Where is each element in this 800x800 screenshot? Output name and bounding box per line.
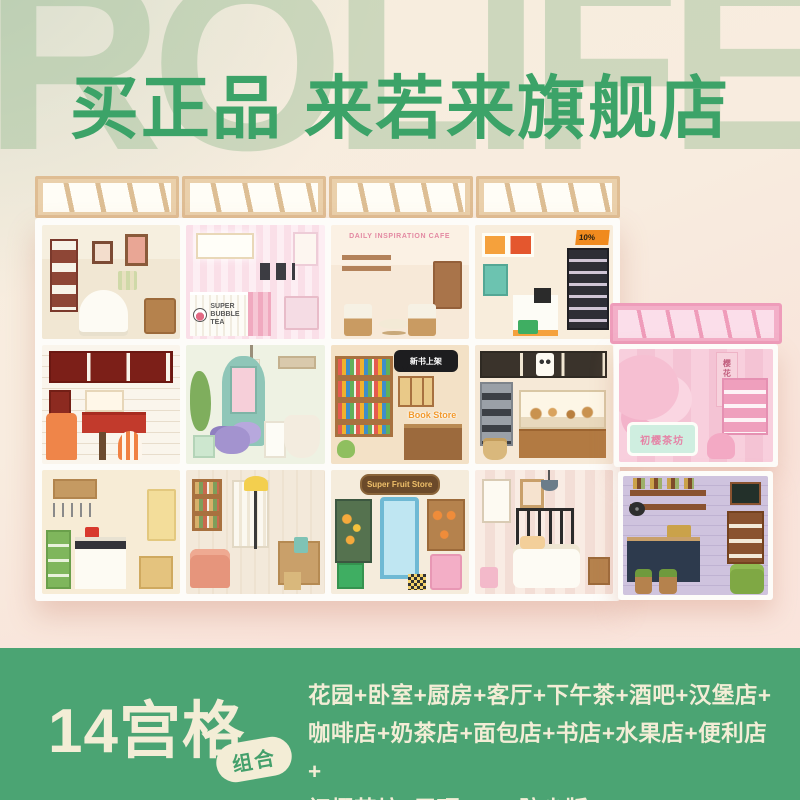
hydrangea-flowers <box>214 426 250 455</box>
teahouse-sign: 初樱茶坊 <box>627 422 698 456</box>
pink-table <box>707 433 735 459</box>
pink-machine <box>284 296 319 330</box>
vinyl-record <box>629 502 645 516</box>
cash-register <box>534 288 551 303</box>
menu-lightbox <box>196 233 254 259</box>
display-cabinet <box>727 511 763 565</box>
green-plush <box>337 440 355 458</box>
cherry-blossom-tree <box>619 355 679 421</box>
room-cafe: DAILY INSPIRATION CAFE <box>331 225 469 339</box>
store-sign: Super Fruit Store <box>360 474 440 495</box>
tea-table <box>79 290 127 336</box>
skylight-panes <box>484 183 612 212</box>
yellow-fridge <box>147 489 176 541</box>
roof-module <box>35 176 179 218</box>
window <box>482 479 511 524</box>
fruit-shelf <box>427 499 464 551</box>
bed-duvet <box>513 544 579 587</box>
sale-sign: 10% <box>575 230 610 245</box>
counter-base <box>519 429 606 458</box>
bread-oven <box>480 382 513 446</box>
wood-counter <box>404 424 462 461</box>
footer-band: 14宫格 组合 花园+卧室+厨房+客厅+下午茶+酒吧+汉堡店+ 咖啡店+奶茶店+… <box>0 648 800 800</box>
wall-shelves <box>630 490 705 496</box>
blue-door <box>380 497 419 579</box>
room-kitchen <box>42 470 180 594</box>
menu-boards <box>49 351 173 383</box>
included-items-list: 花园+卧室+厨房+客厅+下午茶+酒吧+汉堡店+ 咖啡店+奶茶店+面包店+书店+水… <box>308 677 780 800</box>
roof-module <box>476 176 620 218</box>
wall-shelf <box>342 255 392 261</box>
drink-poster <box>293 232 318 266</box>
cafe-chair <box>408 304 436 336</box>
skylight-panes <box>618 310 774 338</box>
room-convenience: 10% <box>475 225 613 339</box>
room-teahouse: 樱花吃茶 初樱茶坊 <box>619 349 773 462</box>
menu-lightbox <box>482 233 535 257</box>
counter-side-panel <box>248 292 270 335</box>
teahouse-box: 樱花吃茶 初樱茶坊 <box>614 344 778 467</box>
bookshelves <box>335 356 393 437</box>
lamp-shade <box>541 480 558 491</box>
fruit-stand <box>335 499 372 563</box>
room-fruit-store: Super Fruit Store <box>331 470 469 594</box>
shopping-basket <box>518 320 539 335</box>
items-line: 咖啡店+奶茶店+面包店+书店+水果店+便利店+ <box>308 715 780 791</box>
counter-sign: SUPER BUBBLE TEA <box>210 303 245 327</box>
nightstand <box>588 557 610 586</box>
teahouse-roof <box>610 303 782 344</box>
room-burger <box>42 345 180 464</box>
burger-display-case <box>85 390 124 411</box>
wall-plaque <box>278 356 317 369</box>
dessert-cart <box>144 298 176 334</box>
items-line: 初樱茶坊+屋顶B*4 +防尘版B*15 <box>308 791 780 800</box>
maroon-shelf <box>50 239 78 312</box>
sale-text: 10% <box>578 232 595 241</box>
roof-module <box>182 176 326 218</box>
items-line: 花园+卧室+厨房+客厅+下午茶+酒吧+汉堡店+ <box>308 677 780 715</box>
booth-seat <box>46 413 76 461</box>
headline: 买正品 来若来旗舰店 <box>0 52 800 152</box>
floor-lamp-shade <box>244 476 268 491</box>
room-living-room <box>186 470 324 594</box>
room-bedroom <box>475 470 613 594</box>
display-cabinet: SUPER BUBBLE TEA DAILY INSPIRATION CAFE … <box>35 218 620 601</box>
table-stand <box>99 432 106 461</box>
arch-window <box>230 366 256 414</box>
room-garden <box>186 345 324 464</box>
bar-box <box>618 471 773 600</box>
utensil-hooks <box>53 503 97 517</box>
white-chair <box>264 421 286 458</box>
room-bubble-tea: SUPER BUBBLE TEA <box>186 225 324 339</box>
cloth-table <box>284 415 320 458</box>
pink-bench <box>480 567 498 588</box>
liquor-bottles <box>633 478 694 489</box>
pink-shelf <box>722 378 768 435</box>
wall-shelf <box>53 479 97 499</box>
skylight-panes <box>43 183 171 212</box>
skylight-panes <box>190 183 318 212</box>
wine-bottles <box>118 271 137 290</box>
stove-counter <box>75 537 126 589</box>
speech-bubble-sign: 新书上架 <box>394 350 458 373</box>
tall-plant <box>190 371 211 431</box>
baguette-basket <box>483 438 507 461</box>
bubble-tea-logo-icon <box>193 308 207 322</box>
green-armchair <box>730 564 763 594</box>
cafe-table <box>379 319 409 329</box>
vending-machine <box>483 264 508 296</box>
striped-chair <box>118 431 142 461</box>
checkered-mat <box>408 574 426 590</box>
room-bar <box>623 476 768 595</box>
bookshelf <box>192 479 222 531</box>
shop-counter: SUPER BUBBLE TEA <box>190 292 248 335</box>
tea-urns <box>260 263 296 280</box>
green-cart <box>46 530 71 590</box>
panda-poster <box>536 353 554 376</box>
wood-cabinet <box>433 261 462 309</box>
green-basket <box>337 563 363 589</box>
cabinet-roof <box>35 176 620 218</box>
room-afternoon-tea <box>42 225 180 339</box>
wall-sign: DAILY INSPIRATION CAFE <box>331 233 469 240</box>
roof-module <box>329 176 473 218</box>
skylight-panes <box>337 183 465 212</box>
stool <box>284 572 301 591</box>
store-sign: Book Store <box>408 410 456 420</box>
room-bookstore: 新书上架 Book Store <box>331 345 469 464</box>
chalkboard <box>730 482 760 505</box>
diner-counter <box>82 412 146 433</box>
pink-shopping-cart <box>430 554 462 590</box>
room-bakery <box>475 345 613 464</box>
mint-stool <box>193 435 215 458</box>
desk-radio <box>294 537 308 553</box>
promo-poster: ROLIFE 买正品 来若来旗舰店 <box>0 0 800 800</box>
display-cubbies <box>398 376 434 407</box>
kitchen-table <box>139 556 174 589</box>
combo-title: 14宫格 <box>48 680 245 770</box>
bar-stool <box>635 569 652 594</box>
pink-sofa <box>190 549 230 587</box>
floor-lamp-pole <box>254 482 257 549</box>
product-photo: SUPER BUBBLE TEA DAILY INSPIRATION CAFE … <box>35 176 783 606</box>
bread-display-case <box>519 390 606 429</box>
wall-poster <box>125 234 149 266</box>
pillow <box>520 536 545 550</box>
wall-picture <box>92 241 113 264</box>
cafe-chair <box>344 304 372 336</box>
bar-stool <box>659 569 676 594</box>
drink-fridge <box>567 248 608 330</box>
